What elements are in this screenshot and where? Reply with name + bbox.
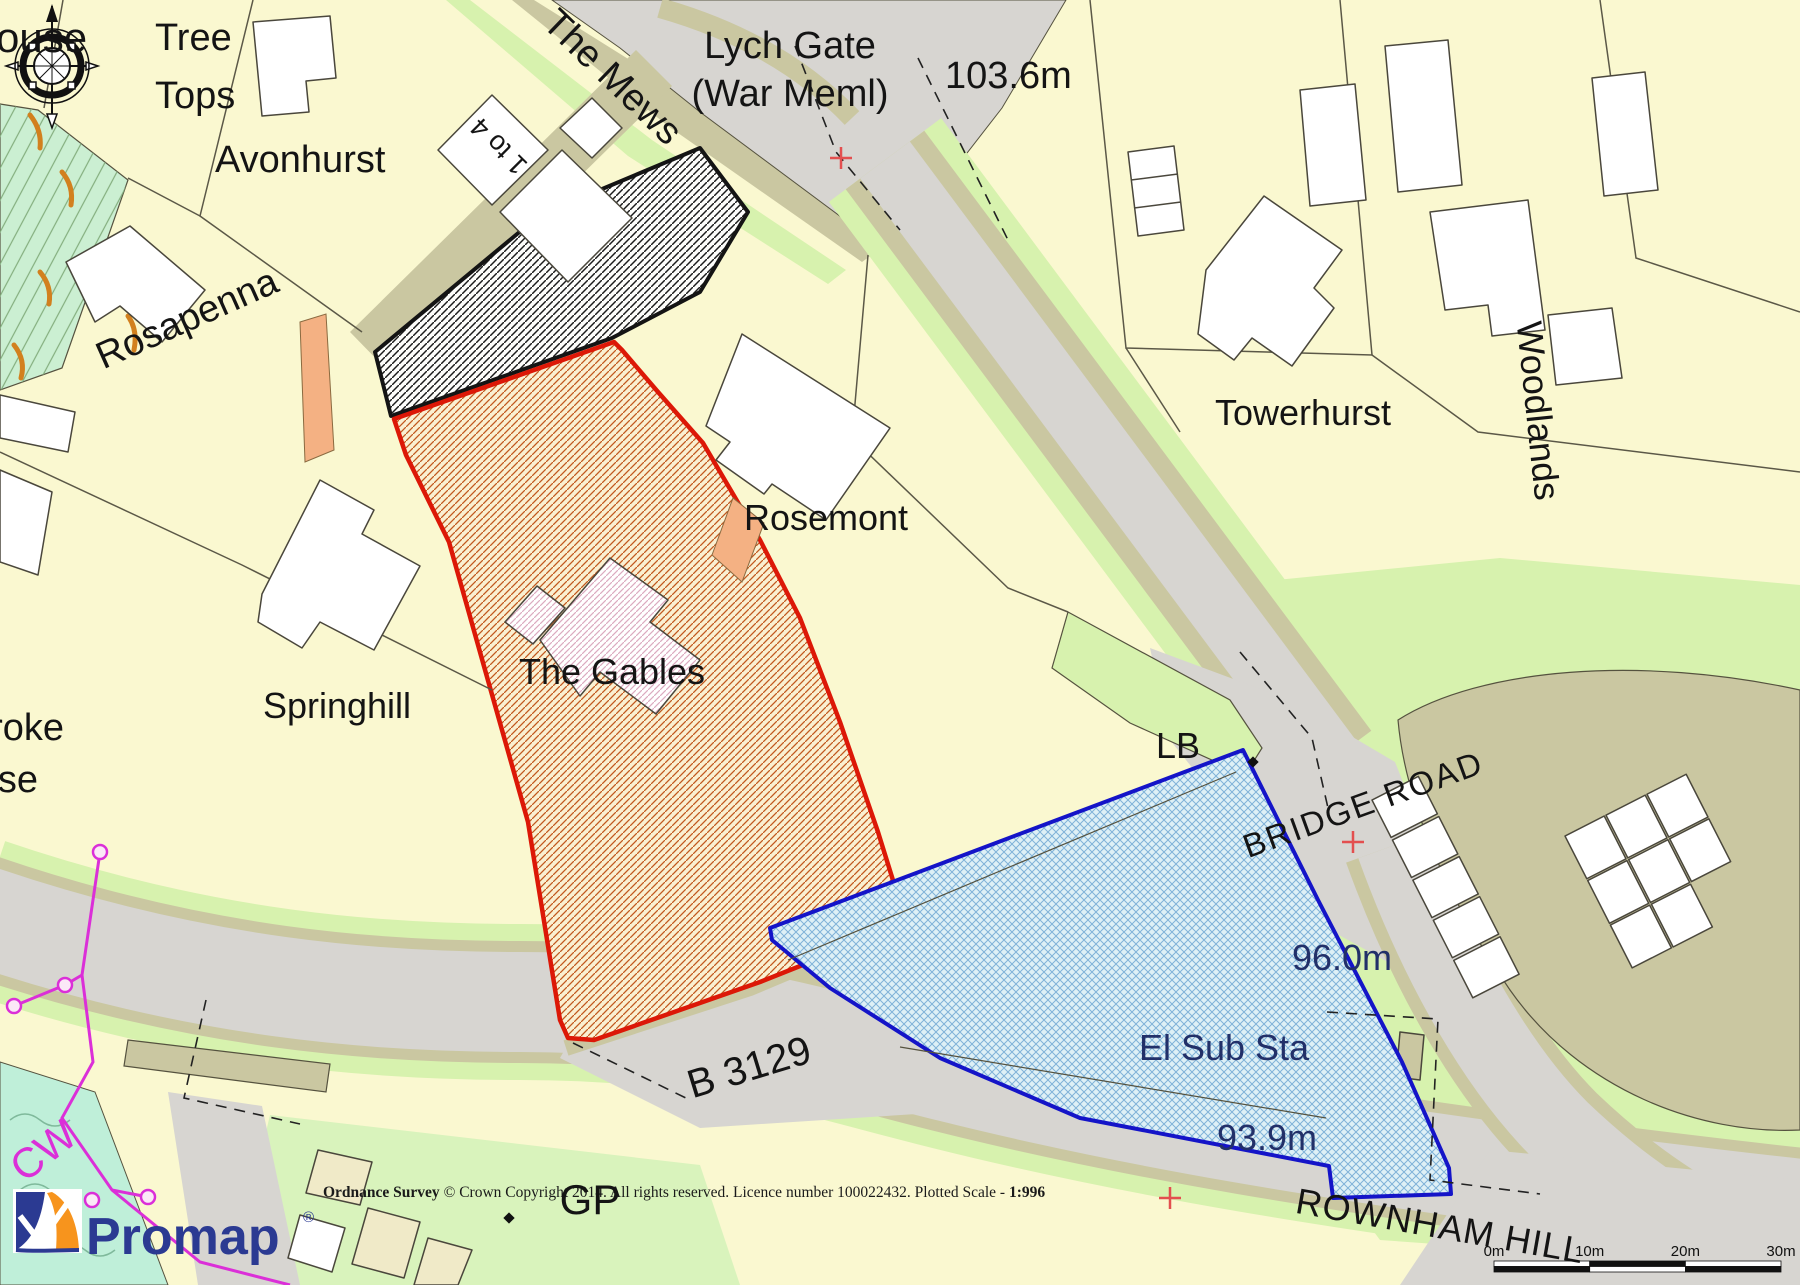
registered-mark: ® xyxy=(303,1209,314,1226)
label-broke-partial: roke xyxy=(0,707,64,749)
label-lych-gate-line1: Lych Gate xyxy=(704,25,876,67)
label-se-partial: se xyxy=(0,759,38,801)
label-spot-height-1036: 103.6m xyxy=(945,55,1072,97)
label-tree-tops-line1: Tree xyxy=(155,17,232,59)
label-lych-gate-line2: (War Meml) xyxy=(692,73,889,115)
scale-label-20m: 20m xyxy=(1671,1243,1700,1260)
building xyxy=(1385,40,1462,192)
label-springhill: Springhill xyxy=(263,685,411,726)
label-house-partial: ouse xyxy=(0,14,87,61)
label-spot-height-939: 93.9m xyxy=(1217,1117,1317,1158)
building xyxy=(1548,308,1622,385)
promap-wordmark: Promap xyxy=(86,1208,280,1266)
building xyxy=(1300,84,1366,206)
building xyxy=(1128,146,1184,236)
label-tree-tops-line2: Tops xyxy=(155,75,235,117)
label-the-gables: The Gables xyxy=(519,651,705,692)
label-rosemont: Rosemont xyxy=(744,497,908,538)
label-spot-height-960: 96.0m xyxy=(1292,937,1392,978)
map-stage: 0m10m20m30m Promap ® Ordnance Survey © C… xyxy=(0,0,1800,1285)
map-canvas[interactable]: 0m10m20m30m Promap ® Ordnance Survey © C… xyxy=(0,0,1800,1285)
scale-label-30m: 30m xyxy=(1766,1243,1795,1260)
label-avonhurst: Avonhurst xyxy=(215,139,386,181)
label-el-sub-sta: El Sub Sta xyxy=(1139,1027,1310,1068)
label-towerhurst: Towerhurst xyxy=(1215,392,1391,433)
label-gp: GP xyxy=(560,1176,621,1223)
copyright-text: Ordnance Survey © Crown Copyright 2014. … xyxy=(323,1184,1045,1201)
label-lb: LB xyxy=(1156,725,1200,766)
